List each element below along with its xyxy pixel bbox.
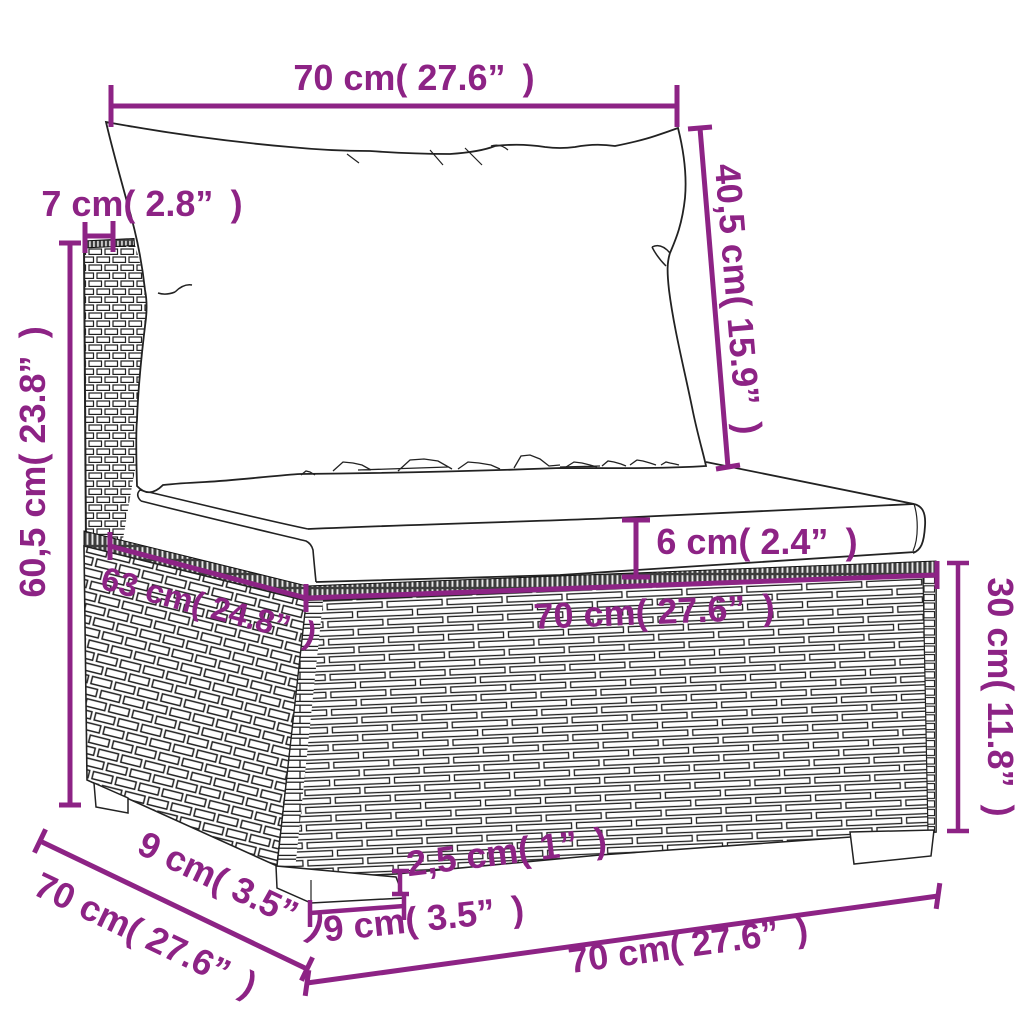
svg-text:70 cm( 27.6” ): 70 cm( 27.6” ) — [293, 57, 534, 98]
svg-text:6 cm( 2.4” ): 6 cm( 2.4” ) — [656, 521, 857, 562]
svg-text:30 cm( 11.8” ): 30 cm( 11.8” ) — [980, 577, 1021, 816]
svg-text:7 cm( 2.8” ): 7 cm( 2.8” ) — [41, 183, 242, 224]
svg-text:60,5 cm( 23.8” ): 60,5 cm( 23.8” ) — [12, 326, 53, 597]
